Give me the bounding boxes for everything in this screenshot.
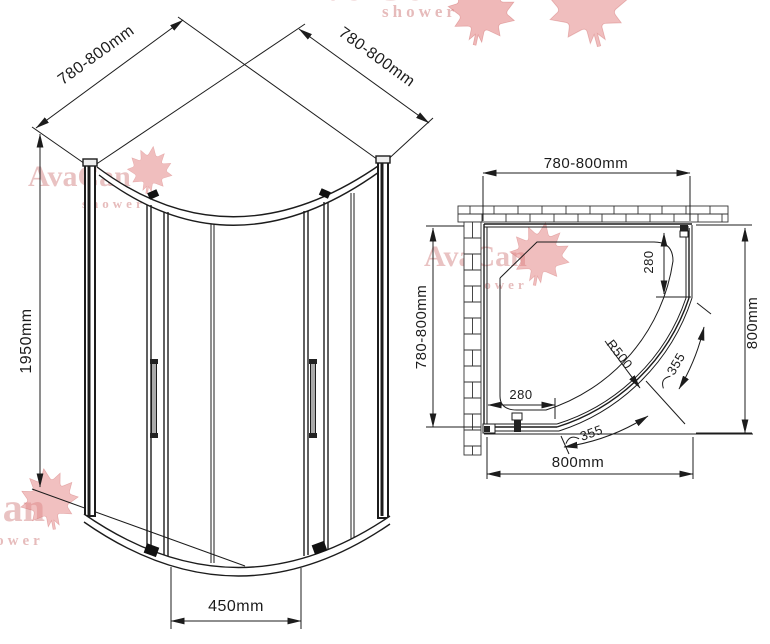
right-door-handle: [309, 359, 317, 438]
plan-left-wall-hatch: [464, 222, 481, 455]
plan-arc-top-dim: 355: [664, 350, 689, 378]
plan-arc-dim-bottom: 355: [563, 422, 605, 450]
door-bracket-top: [680, 231, 688, 237]
plan-view: 780-800mm 780-800mm 800mm 800mm 280 280 …: [413, 155, 761, 479]
door-roller-top: [680, 225, 688, 231]
cad-drawing: 780-800mm 780-800mm 1950mm 450mm: [0, 0, 770, 644]
plan-fixed-panel-bottom-dim: 280: [509, 387, 532, 402]
plan-fixed-panel-right-dim: 280: [641, 250, 656, 273]
plan-width-bottom-dim: 800mm: [552, 454, 605, 471]
plan-arc-bottom-dim: 355: [578, 422, 605, 444]
arc-symbol: [565, 435, 580, 444]
wall-bracket-pad: [484, 426, 490, 432]
iso-enclosure: [83, 156, 390, 576]
iso-width-left-dim: 780-800mm: [55, 22, 138, 89]
left-door-handle: [150, 359, 158, 438]
iso-wall-profiles: [83, 156, 390, 518]
plan-depth-left-dim: 780-800mm: [413, 285, 430, 370]
plan-arc-dim-top: 355: [656, 350, 689, 391]
arc-symbol: [660, 374, 670, 388]
isometric-view: 780-800mm 780-800mm 1950mm 450mm: [18, 17, 433, 629]
plan-enclosure: [483, 224, 753, 434]
iso-door-opening-dim: 450mm: [208, 598, 264, 615]
door-roller-bottom: [514, 420, 521, 432]
door-bracket-bottom: [512, 413, 522, 420]
plan-depth-right-dim: 800mm: [744, 297, 761, 350]
iso-height-dim: 1950mm: [18, 308, 35, 373]
plan-top-wall-hatch: [458, 206, 728, 222]
iso-width-right-dim: 780-800mm: [335, 24, 418, 91]
iso-glass-edges: [147, 193, 354, 563]
plan-width-top-dim: 780-800mm: [544, 155, 629, 172]
shower-enclosure-technical-drawing: AvaCan shower AvaCan shower AvaCan showe…: [0, 0, 770, 644]
